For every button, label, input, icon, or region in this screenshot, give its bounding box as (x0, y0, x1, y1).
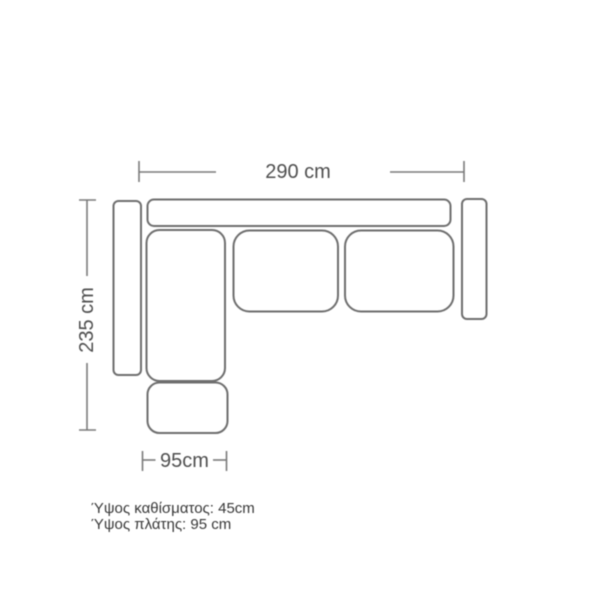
svg-text:95cm: 95cm (160, 450, 209, 472)
svg-text:Ύψος πλάτης: 95 cm: Ύψος πλάτης: 95 cm (91, 516, 231, 533)
svg-text:290 cm: 290 cm (265, 161, 331, 183)
svg-text:Ύψος καθίσματος: 45cm: Ύψος καθίσματος: 45cm (91, 500, 255, 517)
svg-text:235 cm: 235 cm (76, 287, 98, 353)
